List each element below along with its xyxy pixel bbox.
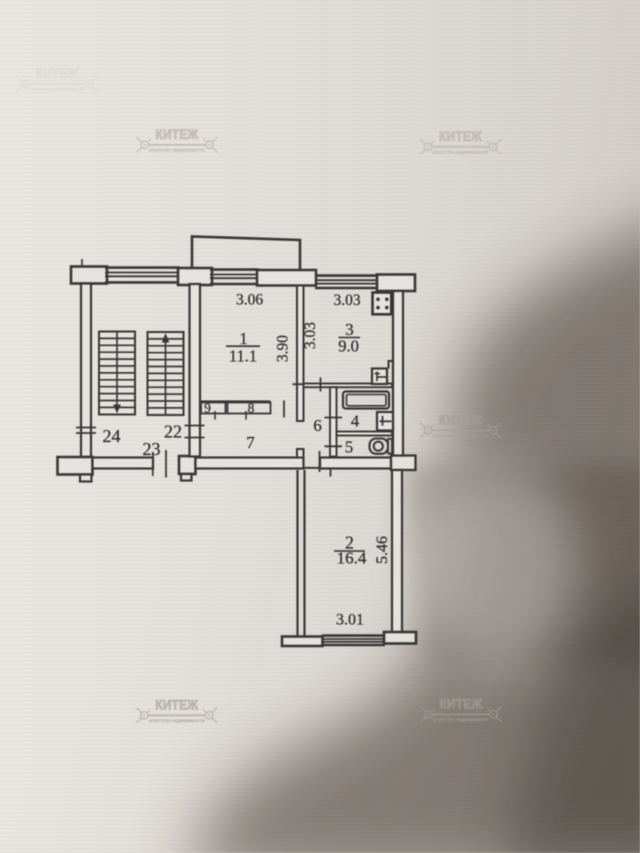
svg-text:9: 9 <box>204 401 211 416</box>
svg-text:3.03: 3.03 <box>333 292 360 309</box>
svg-text:3.06: 3.06 <box>236 292 263 309</box>
svg-text:3.01: 3.01 <box>336 612 364 629</box>
svg-text:6: 6 <box>313 416 322 435</box>
svg-text:11.1: 11.1 <box>229 347 257 366</box>
svg-text:16.4: 16.4 <box>337 549 367 568</box>
svg-text:3.90: 3.90 <box>275 335 292 362</box>
svg-text:5: 5 <box>345 438 354 457</box>
svg-text:4: 4 <box>351 412 360 431</box>
svg-text:8: 8 <box>248 401 255 416</box>
svg-text:9.0: 9.0 <box>338 337 359 356</box>
svg-text:1: 1 <box>239 329 248 348</box>
svg-text:22: 22 <box>164 422 182 442</box>
svg-text:7: 7 <box>246 433 255 452</box>
svg-text:24: 24 <box>103 426 121 446</box>
svg-text:3.03: 3.03 <box>302 322 319 349</box>
svg-text:5.46: 5.46 <box>374 536 391 564</box>
svg-text:23: 23 <box>143 439 161 459</box>
